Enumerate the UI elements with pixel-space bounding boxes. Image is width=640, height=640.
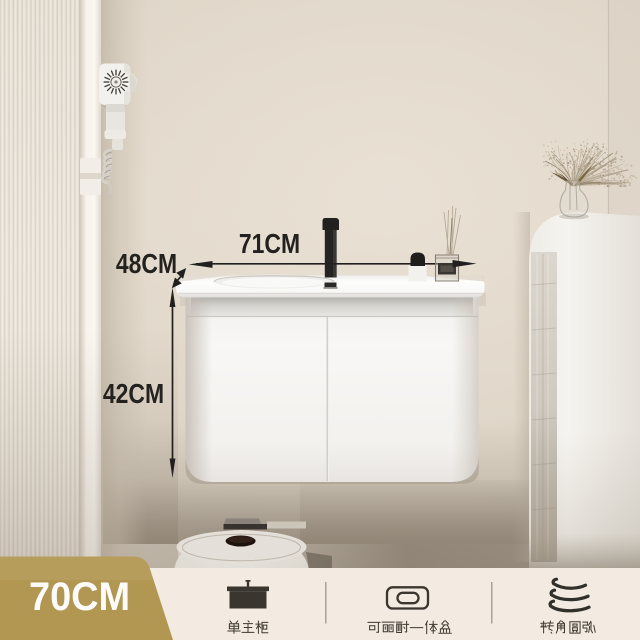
- svg-text:70CM: 70CM: [29, 575, 130, 619]
